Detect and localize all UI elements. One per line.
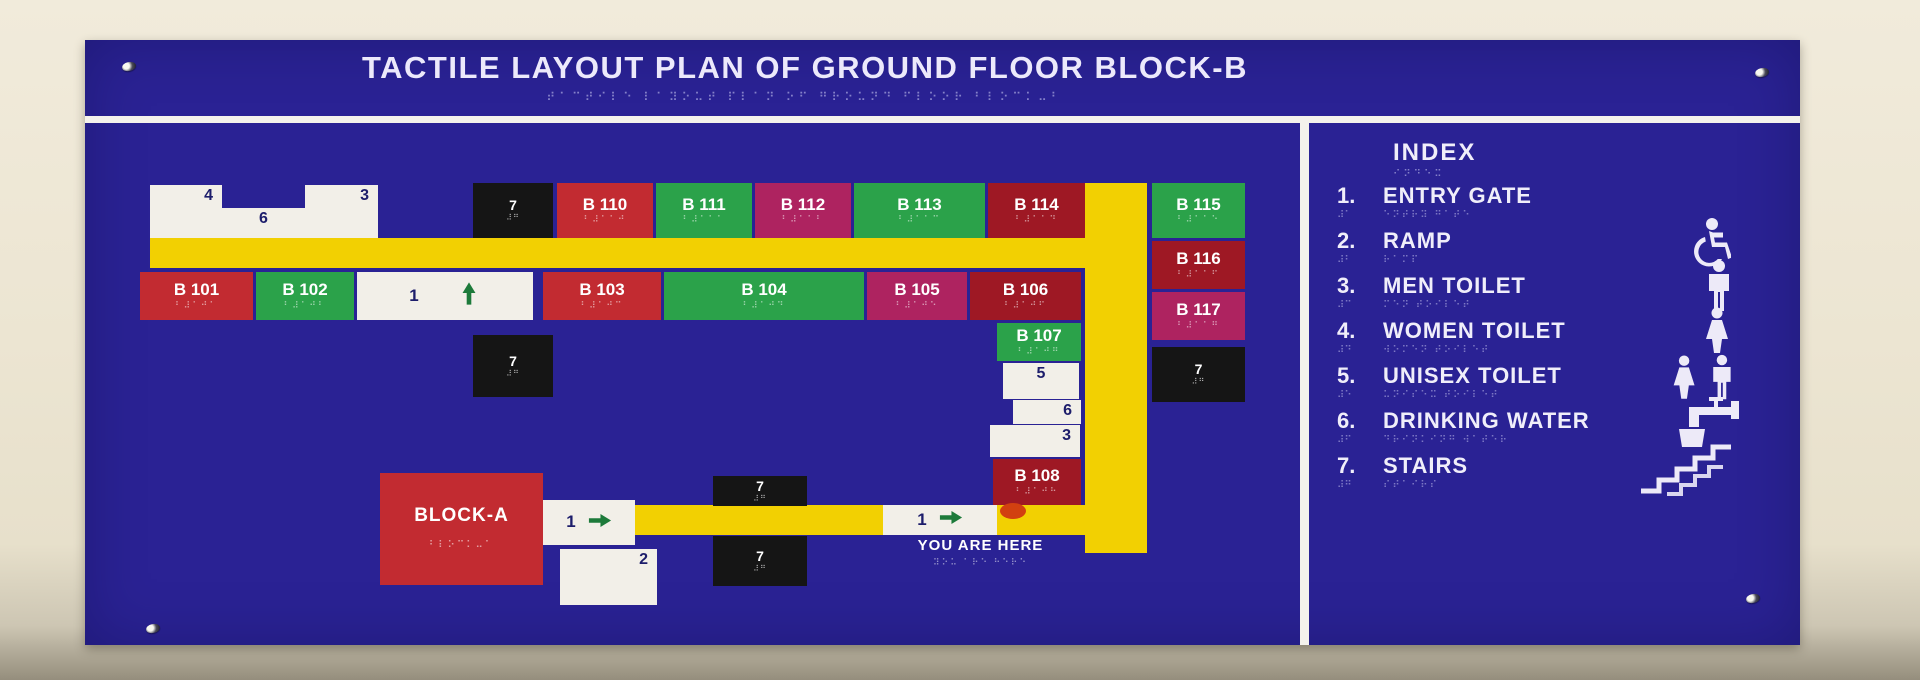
room-b110-label: B 110 [583,196,627,215]
block-a-label: BLOCK-A [414,506,509,527]
stairs-block-bottom-upper-label: 7 [756,479,764,494]
index-item-row: 2.RAMP [1337,228,1697,254]
room-b107: B 107⠃⠼⠁⠚⠛ [997,323,1081,361]
room-b105: B 105⠃⠼⠁⠚⠑ [867,272,967,320]
room-b114-braille: ⠃⠼⠁⠁⠙ [1015,214,1058,225]
you-are-here-label: YOU ARE HERE ⠽⠕⠥ ⠁⠗⠑ ⠓⠑⠗⠑ [878,537,1083,568]
room-4: 4 [150,185,222,238]
room-b111-braille: ⠃⠼⠁⠁⠁ [683,214,726,225]
room-b102-braille: ⠃⠼⠁⠚⠃ [284,300,327,311]
room-b102: B 102⠃⠼⠁⠚⠃ [256,272,354,320]
index-item-entry-gate: 1.ENTRY GATE⠼⠁⠑⠝⠞⠗⠽ ⠛⠁⠞⠑ [1337,183,1697,228]
index-item-number: 6. [1337,408,1383,434]
room-b115-braille: ⠃⠼⠁⠁⠑ [1177,214,1220,225]
stairs-block-right: 7⠼⠛ [1152,347,1245,402]
index-item-braille: ⠼⠁⠑⠝⠞⠗⠽ ⠛⠁⠞⠑ [1337,209,1697,223]
index-item-label: STAIRS [1383,453,1468,478]
index-item-number: 3. [1337,273,1383,299]
you-are-here-marker [1000,503,1026,519]
nav-1-up: 1 [357,272,533,320]
stairs-icon [1637,435,1753,502]
room-b110: B 110⠃⠼⠁⠁⠚ [557,183,653,238]
index-item-label-braille: ⠙⠗⠊⠝⠅⠊⠝⠛ ⠺⠁⠞⠑⠗ [1383,435,1509,446]
index-item-number-braille: ⠼⠛ [1337,479,1383,493]
index-item-number-braille: ⠼⠙ [1337,344,1383,358]
room-b113-label: B 113 [897,196,941,215]
room-b107-label: B 107 [1016,327,1061,346]
room-b111: B 111⠃⠼⠁⠁⠁ [656,183,752,238]
index-item-row: 1.ENTRY GATE [1337,183,1697,209]
nav-1-up-label: 1 [409,287,418,306]
index-item-number-braille: ⠼⠁ [1337,209,1383,223]
room-3b: 3 [990,425,1080,457]
nav-1-right-here: 1 [883,505,997,535]
room-b114-label: B 114 [1014,196,1058,215]
stairs-block-right-braille: ⠼⠛ [1192,377,1206,387]
room-b116-braille: ⠃⠼⠁⠁⠋ [1177,269,1220,280]
nav-1-right: 1 [543,500,635,545]
room-b112: B 112⠃⠼⠁⠁⠃ [755,183,851,238]
room-5-label: 5 [1003,363,1079,385]
room-b103-label: B 103 [579,281,624,300]
block-a-braille: ⠃⠇⠕⠉⠅⠤⠁ [429,540,494,552]
room-b101-braille: ⠃⠼⠁⠚⠁ [175,300,218,311]
nav-1-right-here-label: 1 [917,511,926,530]
room-2-label: 2 [560,549,657,571]
room-b114: B 114⠃⠼⠁⠁⠙ [988,183,1085,238]
room-6b-label: 6 [1013,400,1081,422]
stairs-block-right-label: 7 [1195,362,1203,377]
room-b105-braille: ⠃⠼⠁⠚⠑ [896,300,939,311]
room-3: 3 [305,185,378,238]
stairs-block-top-label: 7 [509,198,517,213]
tactile-sign-photo: TACTILE LAYOUT PLAN OF GROUND FLOOR BLOC… [0,0,1920,680]
index-item-number-braille: ⠼⠑ [1337,389,1383,403]
corridor-vertical [1085,183,1147,553]
stairs-block-mid-label: 7 [509,354,517,369]
index-item-women-toilet: 4.WOMEN TOILET⠼⠙⠺⠕⠍⠑⠝ ⠞⠕⠊⠇⠑⠞ [1337,318,1697,363]
block-a: BLOCK-A⠃⠇⠕⠉⠅⠤⠁ [380,473,543,585]
stairs-block-mid: 7⠼⠛ [473,335,553,397]
room-6b: 6 [1013,400,1081,424]
index-item-braille: ⠼⠙⠺⠕⠍⠑⠝ ⠞⠕⠊⠇⠑⠞ [1337,344,1697,358]
room-b113: B 113⠃⠼⠁⠁⠉ [854,183,985,238]
index-item-men-toilet: 3.MEN TOILET⠼⠉⠍⠑⠝ ⠞⠕⠊⠇⠑⠞ [1337,273,1697,318]
room-b106-braille: ⠃⠼⠁⠚⠋ [1004,300,1047,311]
room-4-label: 4 [150,185,222,207]
index-item-label: ENTRY GATE [1383,183,1532,208]
right-arrow-icon [588,513,612,528]
index-item-label: UNISEX TOILET [1383,363,1562,388]
room-b104: B 104⠃⠼⠁⠚⠙ [664,272,864,320]
index-item-label: WOMEN TOILET [1383,318,1566,343]
index-item-label-braille: ⠍⠑⠝ ⠞⠕⠊⠇⠑⠞ [1383,300,1472,311]
index-item-label-braille: ⠑⠝⠞⠗⠽ ⠛⠁⠞⠑ [1383,210,1472,221]
nav-1-right-label: 1 [566,513,575,532]
room-b113-braille: ⠃⠼⠁⠁⠉ [898,214,941,225]
index-item-label-braille: ⠗⠁⠍⠏ [1383,255,1420,266]
index-item-label-braille: ⠥⠝⠊⠎⠑⠭ ⠞⠕⠊⠇⠑⠞ [1383,390,1500,401]
room-b108-label: B 108 [1014,467,1059,486]
corridor-top [150,238,1147,268]
index-item-braille: ⠼⠃⠗⠁⠍⠏ [1337,254,1697,268]
room-b112-label: B 112 [781,196,825,215]
room-b108-braille: ⠃⠼⠁⠚⠓ [1016,486,1059,497]
room-b104-braille: ⠃⠼⠁⠚⠙ [743,300,786,311]
stairs-block-bottom-upper: 7⠼⠛ [713,476,807,506]
room-b110-braille: ⠃⠼⠁⠁⠚ [584,214,627,225]
room-b117-braille: ⠃⠼⠁⠁⠛ [1177,320,1220,331]
room-b115: B 115⠃⠼⠁⠁⠑ [1152,183,1245,238]
room-6: 6 [222,208,305,238]
room-b101-label: B 101 [174,281,219,300]
room-b111-label: B 111 [682,196,726,215]
room-b115-label: B 115 [1176,196,1220,215]
index-item-label-braille: ⠎⠞⠁⠊⠗⠎ [1383,480,1439,491]
index-item-number-braille: ⠼⠋ [1337,434,1383,448]
index-item-label: RAMP [1383,228,1452,253]
index-item-ramp: 2.RAMP⠼⠃⠗⠁⠍⠏ [1337,228,1697,273]
index-item-row: 4.WOMEN TOILET [1337,318,1697,344]
room-b106-label: B 106 [1003,281,1048,300]
room-b102-label: B 102 [282,281,327,300]
room-b105-label: B 105 [894,281,939,300]
room-b116-label: B 116 [1176,250,1220,269]
index-item-unisex-toilet: 5.UNISEX TOILET⠼⠑⠥⠝⠊⠎⠑⠭ ⠞⠕⠊⠇⠑⠞ [1337,363,1697,408]
room-3-label: 3 [305,185,378,207]
room-b103: B 103⠃⠼⠁⠚⠉ [543,272,661,320]
index-heading: INDEX ⠊⠝⠙⠑⠭ [1393,139,1476,180]
stairs-block-bottom-upper-braille: ⠼⠛ [753,494,767,504]
stairs-block-top-braille: ⠼⠛ [506,213,520,223]
index-item-number: 1. [1337,183,1383,209]
room-b117: B 117⠃⠼⠁⠁⠛ [1152,292,1245,340]
index-item-number: 4. [1337,318,1383,344]
room-b117-label: B 117 [1176,301,1220,320]
up-arrow-icon [461,282,476,306]
stairs-block-bottom-lower-label: 7 [756,549,764,564]
index-item-number: 2. [1337,228,1383,254]
room-2: 2 [560,549,657,605]
index-item-number-braille: ⠼⠉ [1337,299,1383,313]
index-item-braille: ⠼⠑⠥⠝⠊⠎⠑⠭ ⠞⠕⠊⠇⠑⠞ [1337,389,1697,403]
room-3b-label: 3 [990,425,1080,447]
room-b108: B 108⠃⠼⠁⠚⠓ [993,459,1081,505]
index-item-label-braille: ⠺⠕⠍⠑⠝ ⠞⠕⠊⠇⠑⠞ [1383,345,1490,356]
room-b103-braille: ⠃⠼⠁⠚⠉ [581,300,624,311]
room-b112-braille: ⠃⠼⠁⠁⠃ [782,214,825,225]
stairs-block-top: 7⠼⠛ [473,183,553,238]
stairs-block-mid-braille: ⠼⠛ [506,369,520,379]
stairs-block-bottom-lower: 7⠼⠛ [713,536,807,586]
room-b101: B 101⠃⠼⠁⠚⠁ [140,272,253,320]
room-b104-label: B 104 [741,281,786,300]
index-item-braille: ⠼⠉⠍⠑⠝ ⠞⠕⠊⠇⠑⠞ [1337,299,1697,313]
room-b107-braille: ⠃⠼⠁⠚⠛ [1018,346,1061,357]
index-item-row: 6.DRINKING WATER [1337,408,1697,434]
room-5: 5 [1003,363,1079,399]
index-item-number: 5. [1337,363,1383,389]
index-item-number: 7. [1337,453,1383,479]
index-item-number-braille: ⠼⠃ [1337,254,1383,268]
right-arrow-icon [939,510,963,525]
stairs-block-bottom-lower-braille: ⠼⠛ [753,564,767,574]
room-b106: B 106⠃⠼⠁⠚⠋ [970,272,1081,320]
index-item-label: DRINKING WATER [1383,408,1590,433]
index-item-row: 5.UNISEX TOILET [1337,363,1697,389]
index-item-row: 3.MEN TOILET [1337,273,1697,299]
room-6-label: 6 [222,208,305,230]
index-panel: INDEX ⠊⠝⠙⠑⠭ 1.ENTRY GATE⠼⠁⠑⠝⠞⠗⠽ ⠛⠁⠞⠑2.RA… [1315,125,1797,645]
room-b116: B 116⠃⠼⠁⠁⠋ [1152,241,1245,289]
index-item-label: MEN TOILET [1383,273,1526,298]
